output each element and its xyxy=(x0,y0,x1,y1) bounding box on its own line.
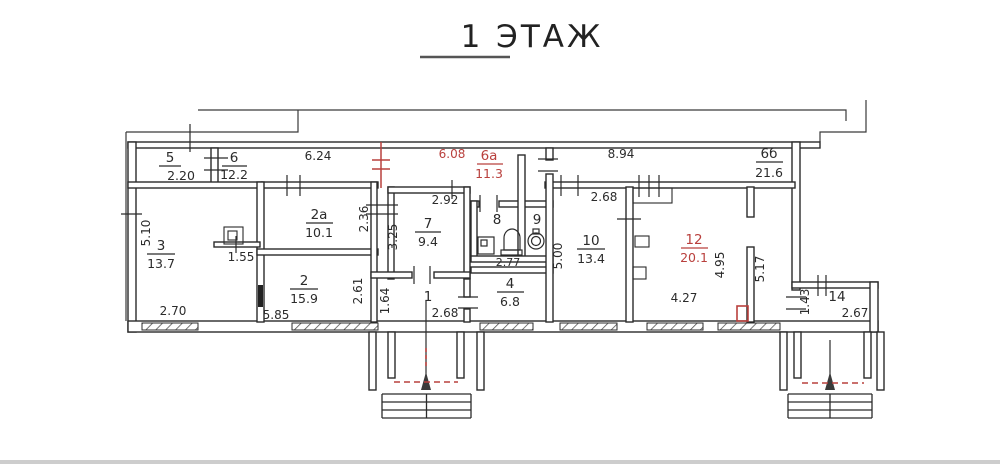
porch1-jamb-left xyxy=(369,332,376,390)
wall-top xyxy=(128,142,820,148)
porch2-jamb-left xyxy=(780,332,787,390)
room3-number: 3 xyxy=(157,238,166,254)
dim-2-36: 2.36 xyxy=(357,206,371,233)
window xyxy=(718,323,780,330)
porch2-steps xyxy=(788,394,872,418)
dim-2-77: 2.77 xyxy=(496,256,521,269)
room14-top-wall xyxy=(792,282,878,288)
wall-room1-right-b xyxy=(464,309,470,322)
porch2-wall-left xyxy=(794,332,801,378)
room6-area: 12.2 xyxy=(220,167,248,182)
room14-number: 14 xyxy=(828,289,845,305)
panel-box-3 xyxy=(633,267,646,279)
wall-room2-top xyxy=(257,249,378,255)
dim-5-17: 5.17 xyxy=(753,256,767,283)
red-section-mark xyxy=(372,142,390,188)
porch1-steps xyxy=(382,394,471,418)
wall-room1-right-a xyxy=(464,279,470,297)
wall-room7-bottom-l xyxy=(371,272,412,278)
entrance-arrow-icon xyxy=(825,372,835,390)
wall-room2a-top xyxy=(262,182,378,188)
floor-plan-drawing: 1 ЭТАЖ xyxy=(0,0,1000,467)
room5-number: 5 xyxy=(166,150,175,166)
room6a-number: 6а xyxy=(481,148,498,164)
room4-number: 4 xyxy=(506,276,515,292)
room6b-number: 6б xyxy=(761,146,778,162)
entrance-arrow-icon xyxy=(421,372,431,390)
roof-canopy-outline xyxy=(126,100,866,321)
porch2-wall-right xyxy=(864,332,871,378)
room2-number: 2 xyxy=(300,273,309,289)
room6b-area: 21.6 xyxy=(755,165,783,180)
panel-box-2 xyxy=(635,236,649,247)
room4-area: 6.8 xyxy=(500,294,520,309)
wall-room3-top xyxy=(128,182,262,188)
wall-room8-left xyxy=(471,201,477,261)
room7-number: 7 xyxy=(424,216,433,232)
window xyxy=(647,323,703,330)
wall-a xyxy=(371,182,377,322)
room2-area: 15.9 xyxy=(290,291,318,306)
dim-2-67: 2.67 xyxy=(842,306,869,320)
washer-icon-detail xyxy=(481,240,487,246)
wall-room7-bottom-r xyxy=(434,272,470,278)
room7-area: 9.4 xyxy=(418,234,438,249)
page-title: 1 ЭТАЖ xyxy=(461,19,604,55)
dim-2-92: 2.92 xyxy=(432,193,459,207)
dim-4-95: 4.95 xyxy=(713,252,727,279)
dim-5-85: 5.85 xyxy=(263,308,290,322)
dim-2-70: 2.70 xyxy=(160,304,187,318)
dim-4-27: 4.27 xyxy=(671,291,698,305)
dim-1-64: 1.64 xyxy=(378,288,392,315)
footer-bar xyxy=(0,460,1000,464)
dim-5-00: 5.00 xyxy=(551,243,565,270)
porch1-wall-right xyxy=(457,332,464,378)
window xyxy=(560,323,617,330)
room3-area: 13.7 xyxy=(147,256,175,271)
vent-shaft xyxy=(258,285,263,307)
window xyxy=(142,323,198,330)
porch2-jamb-right xyxy=(877,332,884,390)
wall-room12-right-a xyxy=(747,187,754,217)
room-labels: 5 2.20 6 12.2 6а 11.3 6б 21.6 3 13.7 2а … xyxy=(147,146,846,309)
dim-5-10: 5.10 xyxy=(139,220,153,247)
dim-2-61: 2.61 xyxy=(351,278,365,305)
room10-area: 13.4 xyxy=(577,251,605,266)
room5-dim: 2.20 xyxy=(167,168,195,183)
room2a-number: 2а xyxy=(311,207,328,223)
room12-area: 20.1 xyxy=(680,250,708,265)
porch1-jamb-right xyxy=(477,332,484,390)
room14-right-wall xyxy=(870,282,878,332)
dim-6-24: 6.24 xyxy=(305,149,332,163)
dim-2-68-b: 2.68 xyxy=(591,190,618,204)
dim-3-25: 3.25 xyxy=(386,224,400,251)
wall-room10-right xyxy=(626,187,633,322)
wall-room5-6 xyxy=(211,148,218,183)
window xyxy=(480,323,533,330)
window xyxy=(292,323,378,330)
sink-icon-bowl xyxy=(532,237,541,246)
floor-plan-page: 1 ЭТАЖ xyxy=(0,0,1000,467)
dim-1-55: 1.55 xyxy=(228,250,255,264)
wall-c-upper xyxy=(546,148,553,160)
dim-1-43: 1.43 xyxy=(798,289,812,316)
wall-right xyxy=(792,142,800,290)
room6-number: 6 xyxy=(230,150,239,166)
wall-room7-right xyxy=(464,187,470,279)
bathroom-fixtures xyxy=(478,229,544,255)
dim-6-08: 6.08 xyxy=(439,147,466,161)
wall-left xyxy=(128,142,136,332)
room1-number: 1 xyxy=(424,289,433,305)
room12-number: 12 xyxy=(685,232,702,248)
wall-room8-9 xyxy=(518,155,525,261)
room8-number: 8 xyxy=(493,212,502,228)
room2a-area: 10.1 xyxy=(305,225,333,240)
dim-8-94: 8.94 xyxy=(608,147,635,161)
sink-icon xyxy=(528,233,544,249)
porch1-wall-left xyxy=(388,332,395,378)
room6a-area: 11.3 xyxy=(475,166,503,181)
room10-number: 10 xyxy=(582,233,599,249)
wall-strip-right xyxy=(545,182,795,188)
wall-room8-top-r xyxy=(499,201,553,207)
dim-2-68-a: 2.68 xyxy=(432,306,459,320)
room9-number: 9 xyxy=(533,212,542,228)
